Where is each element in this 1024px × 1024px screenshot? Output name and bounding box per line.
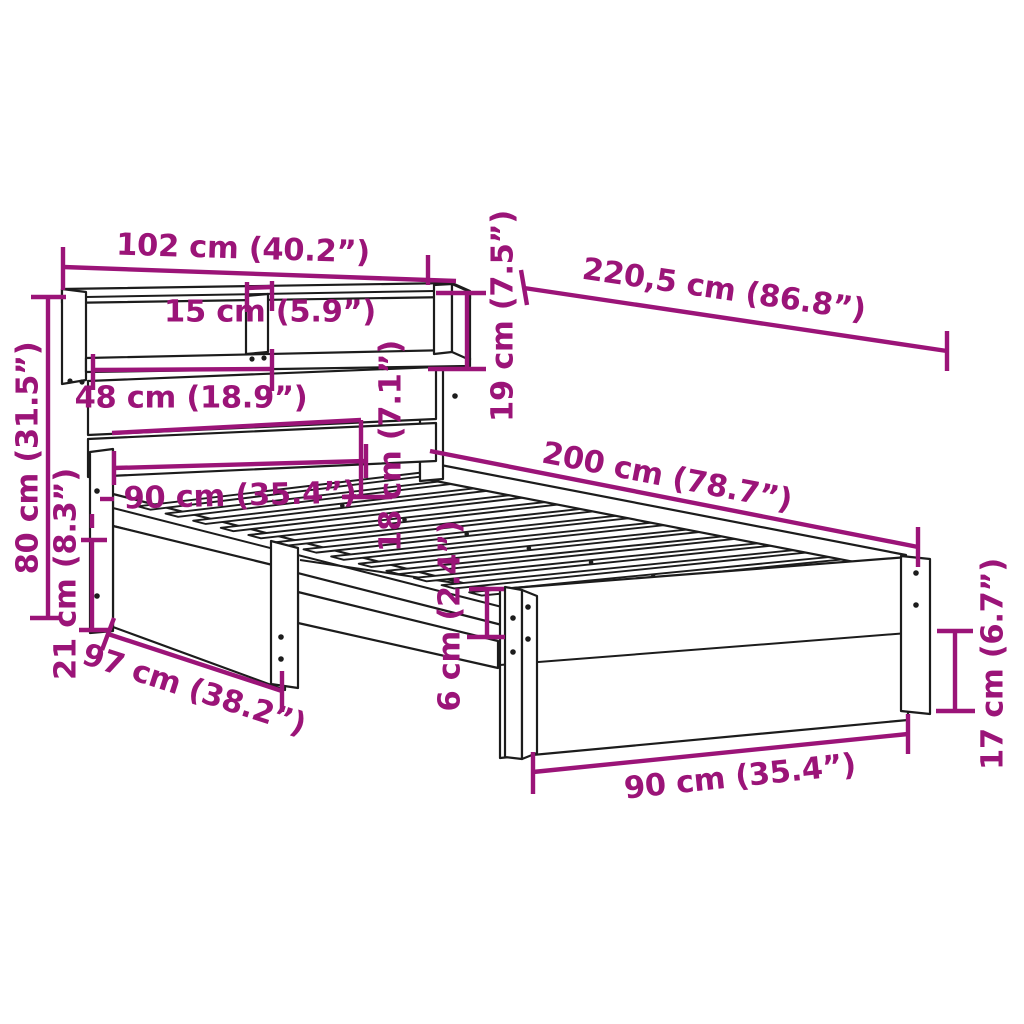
dim-leg-height: 17 cm (6.7”) [936, 558, 1011, 770]
footboard [500, 556, 930, 759]
dim-headboard-width-label: 102 cm (40.2”) [116, 228, 371, 271]
dim-headboard-above-bed-label: 18 cm (7.1”) [374, 340, 409, 552]
dim-headboard-height-label: 80 cm (31.5”) [11, 342, 46, 575]
middle-leg [271, 541, 298, 688]
dim-shelf-opening-label: 48 cm (18.9”) [75, 381, 308, 416]
dim-underbed-clearance-label: 21 cm (8.3”) [49, 468, 84, 680]
diagram-canvas: 102 cm (40.2”) 220,5 cm (86.8”) 19 cm (7… [0, 0, 1024, 1024]
dim-side-rail-label: 6 cm (2.4”) [433, 521, 468, 712]
dim-bed-width-foot-label: 90 cm (35.4”) [622, 747, 857, 806]
dim-headboard-width: 102 cm (40.2”) [63, 228, 456, 290]
dim-leg-height-label: 17 cm (6.7”) [976, 558, 1011, 770]
dim-shelf-height-label: 19 cm (7.5”) [486, 210, 521, 422]
dim-total-length: 220,5 cm (86.8”) [521, 252, 947, 371]
dim-bed-width-head-label: 90 cm (35.4”) [123, 475, 357, 516]
bed-dimension-diagram: 102 cm (40.2”) 220,5 cm (86.8”) 19 cm (7… [0, 0, 1024, 1024]
dim-shelf-compartment-label: 15 cm (5.9”) [164, 295, 376, 330]
